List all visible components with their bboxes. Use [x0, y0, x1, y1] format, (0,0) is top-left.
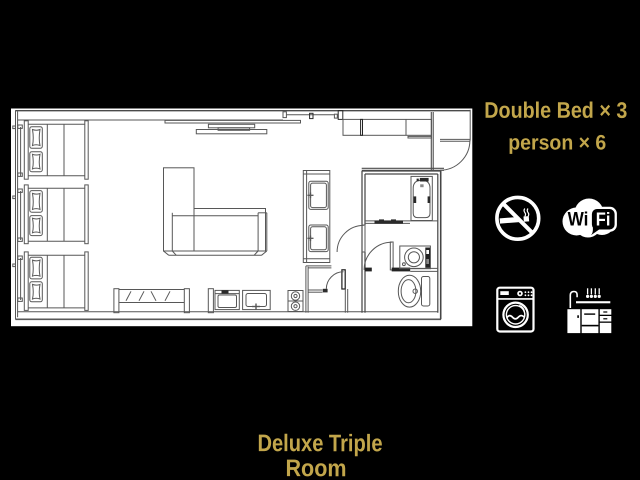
svg-text:Room: Room: [285, 455, 346, 480]
svg-text:Wi: Wi: [568, 209, 589, 231]
svg-text:Fi: Fi: [596, 209, 611, 229]
svg-text:Double Bed × 3: Double Bed × 3: [484, 98, 627, 123]
svg-text:person × 6: person × 6: [508, 131, 606, 154]
svg-text:Deluxe Triple: Deluxe Triple: [258, 430, 383, 457]
